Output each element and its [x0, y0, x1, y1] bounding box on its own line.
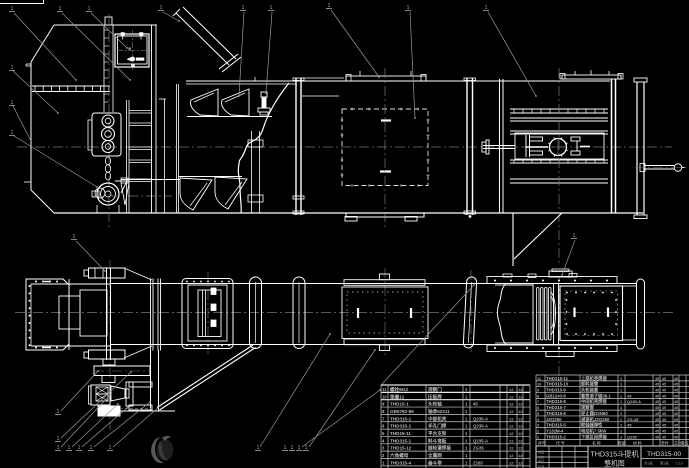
- svg-text:THD315-9: THD315-9: [546, 388, 566, 393]
- svg-text:1: 1: [620, 389, 622, 393]
- svg-text:3: 3: [537, 424, 539, 428]
- svg-text:Q235-A: Q235-A: [473, 416, 488, 421]
- svg-text:45: 45: [662, 429, 666, 433]
- svg-text:45: 45: [662, 424, 666, 428]
- svg-text:12: 12: [509, 402, 514, 407]
- svg-text:8: 8: [537, 394, 539, 398]
- svg-text:45: 45: [674, 418, 678, 422]
- svg-text:THD315-1: THD315-1: [390, 424, 412, 429]
- svg-text:ZG35: ZG35: [473, 446, 484, 451]
- svg-text:六角螺母: 六角螺母: [390, 452, 409, 459]
- svg-text:1: 1: [620, 406, 622, 410]
- svg-text:45: 45: [674, 412, 678, 416]
- svg-text:名 称: 名 称: [592, 441, 601, 446]
- svg-text:序号: 序号: [538, 441, 546, 446]
- svg-text:螺栓M12: 螺栓M12: [390, 386, 409, 393]
- svg-text:12: 12: [518, 394, 523, 399]
- svg-text:9: 9: [537, 389, 539, 393]
- svg-text:THD315-11: THD315-11: [546, 376, 569, 381]
- svg-text:12: 12: [509, 394, 514, 399]
- svg-text:45: 45: [662, 377, 666, 381]
- svg-text:垫圈12: 垫圈12: [390, 393, 405, 400]
- svg-text:12: 12: [509, 431, 514, 436]
- svg-text:链轮罩焊接: 链轮罩焊接: [427, 445, 451, 452]
- svg-text:校核: 校核: [538, 454, 545, 459]
- svg-text:11: 11: [537, 377, 541, 381]
- svg-text:45: 45: [662, 400, 666, 404]
- svg-text:代 号: 代 号: [556, 441, 565, 446]
- svg-text:第1张: 第1张: [660, 461, 669, 466]
- svg-text:观察门: 观察门: [428, 386, 442, 393]
- svg-text:Y132M-4: Y132M-4: [546, 428, 564, 433]
- svg-text:备注: 备注: [681, 441, 689, 446]
- svg-text:45: 45: [662, 418, 666, 422]
- svg-text:THD315-1: THD315-1: [390, 438, 412, 443]
- svg-text:1: 1: [620, 435, 622, 439]
- svg-text:数量: 数量: [618, 441, 626, 446]
- svg-text:1:10: 1:10: [676, 462, 683, 466]
- svg-text:45: 45: [674, 429, 678, 433]
- svg-text:1: 1: [620, 412, 622, 416]
- svg-text:THD315-8: THD315-8: [546, 399, 566, 404]
- svg-text:THD315-5: THD315-5: [546, 423, 566, 428]
- svg-text:头轮轴: 头轮轴: [428, 401, 442, 408]
- svg-text:45: 45: [662, 412, 666, 416]
- svg-text:45: 45: [655, 429, 659, 433]
- svg-text:2: 2: [537, 429, 539, 433]
- svg-text:ZG-45: ZG-45: [627, 417, 639, 422]
- svg-text:45: 45: [662, 435, 666, 439]
- svg-text:12: 12: [518, 431, 523, 436]
- svg-text:12: 12: [509, 438, 514, 443]
- svg-text:45: 45: [655, 394, 659, 398]
- svg-text:THD15-11: THD15-11: [390, 431, 411, 436]
- svg-text:45: 45: [655, 400, 659, 404]
- svg-text:12: 12: [518, 438, 523, 443]
- svg-text:45: 45: [674, 424, 678, 428]
- svg-text:料斗弯板: 料斗弯板: [428, 437, 447, 444]
- svg-text:共1张: 共1张: [644, 461, 653, 466]
- svg-text:1: 1: [620, 400, 622, 404]
- svg-text:45: 45: [627, 393, 632, 398]
- svg-text:Q235-A: Q235-A: [473, 438, 488, 443]
- svg-text:12: 12: [518, 424, 523, 429]
- svg-text:1: 1: [620, 377, 622, 381]
- svg-text:45: 45: [674, 435, 678, 439]
- svg-text:THD315-2: THD315-2: [546, 434, 566, 439]
- svg-text:7: 7: [537, 400, 539, 404]
- svg-text:11: 11: [382, 387, 387, 392]
- svg-text:审核: 审核: [538, 459, 545, 464]
- svg-text:1: 1: [620, 429, 622, 433]
- svg-text:5: 5: [537, 412, 539, 416]
- svg-text:THD315-10: THD315-10: [546, 382, 569, 387]
- svg-text:1: 1: [620, 424, 622, 428]
- svg-text:压板焊: 压板焊: [428, 393, 442, 400]
- svg-text:1: 1: [620, 394, 622, 398]
- svg-text:12: 12: [509, 446, 514, 451]
- svg-text:45: 45: [655, 418, 659, 422]
- svg-text:单件: 单件: [661, 441, 669, 446]
- svg-text:45: 45: [662, 406, 666, 410]
- svg-text:45: 45: [655, 424, 659, 428]
- svg-text:下部区段焊接: 下部区段焊接: [581, 433, 607, 440]
- svg-text:GB5782-86: GB5782-86: [390, 409, 414, 414]
- svg-text:整机图: 整机图: [604, 459, 625, 468]
- svg-text:平台支架: 平台支架: [428, 430, 447, 437]
- svg-text:45: 45: [655, 377, 659, 381]
- svg-text:Q235-A: Q235-A: [473, 424, 488, 429]
- svg-text:制图: 制图: [538, 450, 544, 455]
- svg-text:12: 12: [518, 453, 523, 458]
- svg-text:45: 45: [674, 406, 678, 410]
- svg-text:45: 45: [655, 412, 659, 416]
- svg-text:JZQ250: JZQ250: [546, 417, 562, 422]
- svg-text:材 料: 材 料: [633, 441, 642, 446]
- svg-text:45: 45: [674, 377, 678, 381]
- svg-text:12: 12: [509, 416, 514, 421]
- svg-text:45: 45: [655, 406, 659, 410]
- svg-text:12: 12: [509, 453, 514, 458]
- svg-text:Q235-A: Q235-A: [627, 399, 641, 404]
- svg-text:THD15-1: THD15-1: [390, 402, 409, 407]
- svg-text:中部机壳: 中部机壳: [428, 415, 447, 422]
- svg-text:6: 6: [537, 406, 539, 410]
- svg-text:12: 12: [518, 416, 523, 421]
- svg-text:1: 1: [620, 383, 622, 387]
- svg-text:轴承62311: 轴承62311: [428, 408, 450, 415]
- svg-text:12: 12: [509, 424, 514, 429]
- svg-text:Q235: Q235: [627, 434, 638, 439]
- svg-text:45: 45: [655, 435, 659, 439]
- svg-text:THD315-7: THD315-7: [546, 405, 566, 410]
- svg-text:THD315斗提机: THD315斗提机: [590, 450, 639, 459]
- svg-text:Z165: Z165: [473, 460, 483, 465]
- svg-text:45: 45: [627, 423, 632, 428]
- svg-text:全属网: 全属网: [427, 452, 442, 459]
- svg-text:45: 45: [674, 383, 678, 387]
- svg-text:12: 12: [509, 460, 514, 465]
- svg-text:12: 12: [518, 446, 523, 451]
- svg-text:畚斗带: 畚斗带: [428, 459, 442, 466]
- svg-text:10: 10: [382, 394, 387, 399]
- svg-text:45: 45: [674, 400, 678, 404]
- svg-text:手孔门焊: 手孔门焊: [428, 423, 447, 430]
- svg-text:12: 12: [518, 409, 523, 414]
- svg-text:THD315-6: THD315-6: [546, 411, 566, 416]
- svg-text:12: 12: [509, 387, 514, 392]
- svg-text:45: 45: [662, 383, 666, 387]
- svg-text:45: 45: [662, 394, 666, 398]
- svg-text:THD315-4: THD315-4: [390, 460, 412, 465]
- svg-text:45: 45: [674, 394, 678, 398]
- svg-text:THD315-1: THD315-1: [390, 416, 412, 421]
- svg-text:45: 45: [674, 389, 678, 393]
- svg-text:1: 1: [620, 418, 622, 422]
- svg-text:12: 12: [509, 409, 514, 414]
- svg-text:45: 45: [655, 383, 659, 387]
- svg-text:45: 45: [662, 389, 666, 393]
- svg-text:1: 1: [537, 435, 539, 439]
- svg-text:THD315-00: THD315-00: [647, 451, 681, 458]
- svg-text:12: 12: [518, 460, 523, 465]
- svg-text:10: 10: [537, 383, 541, 387]
- svg-text:标准: 标准: [538, 464, 545, 468]
- svg-text:45: 45: [473, 402, 478, 407]
- svg-text:45: 45: [655, 389, 659, 393]
- svg-text:THD15-12: THD15-12: [390, 446, 412, 451]
- svg-text:GB1243-8: GB1243-8: [546, 393, 566, 398]
- svg-text:12: 12: [518, 387, 523, 392]
- svg-text:12: 12: [518, 402, 523, 407]
